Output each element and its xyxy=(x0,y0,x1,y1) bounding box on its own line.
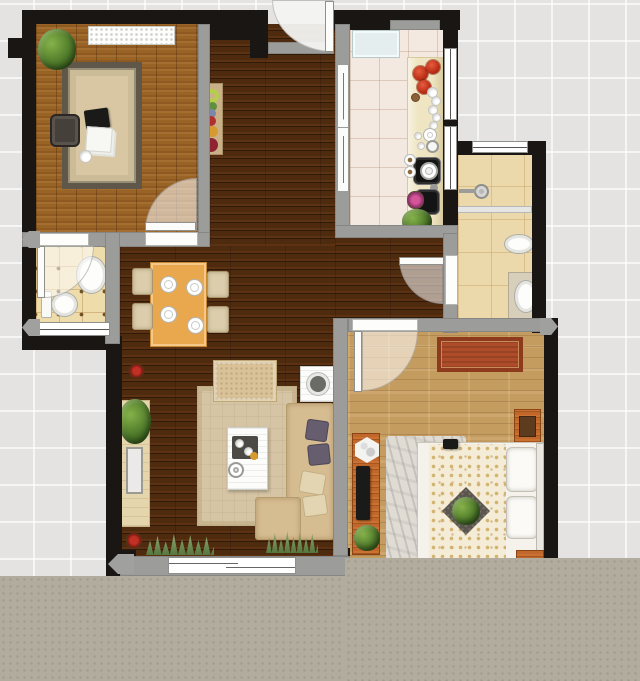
floorplan-canvas[interactable] xyxy=(0,0,640,681)
layer-bottom-mask xyxy=(0,0,640,681)
bottom-mask-right xyxy=(345,558,640,681)
bottom-mask-left xyxy=(0,576,345,681)
